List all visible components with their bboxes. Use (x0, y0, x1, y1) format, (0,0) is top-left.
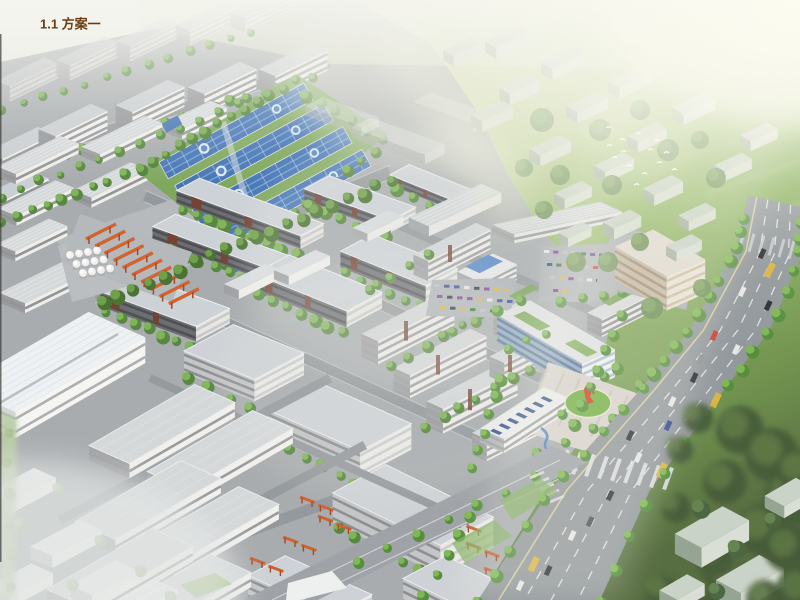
svg-text:1.1 方案一: 1.1 方案一 (40, 17, 101, 32)
